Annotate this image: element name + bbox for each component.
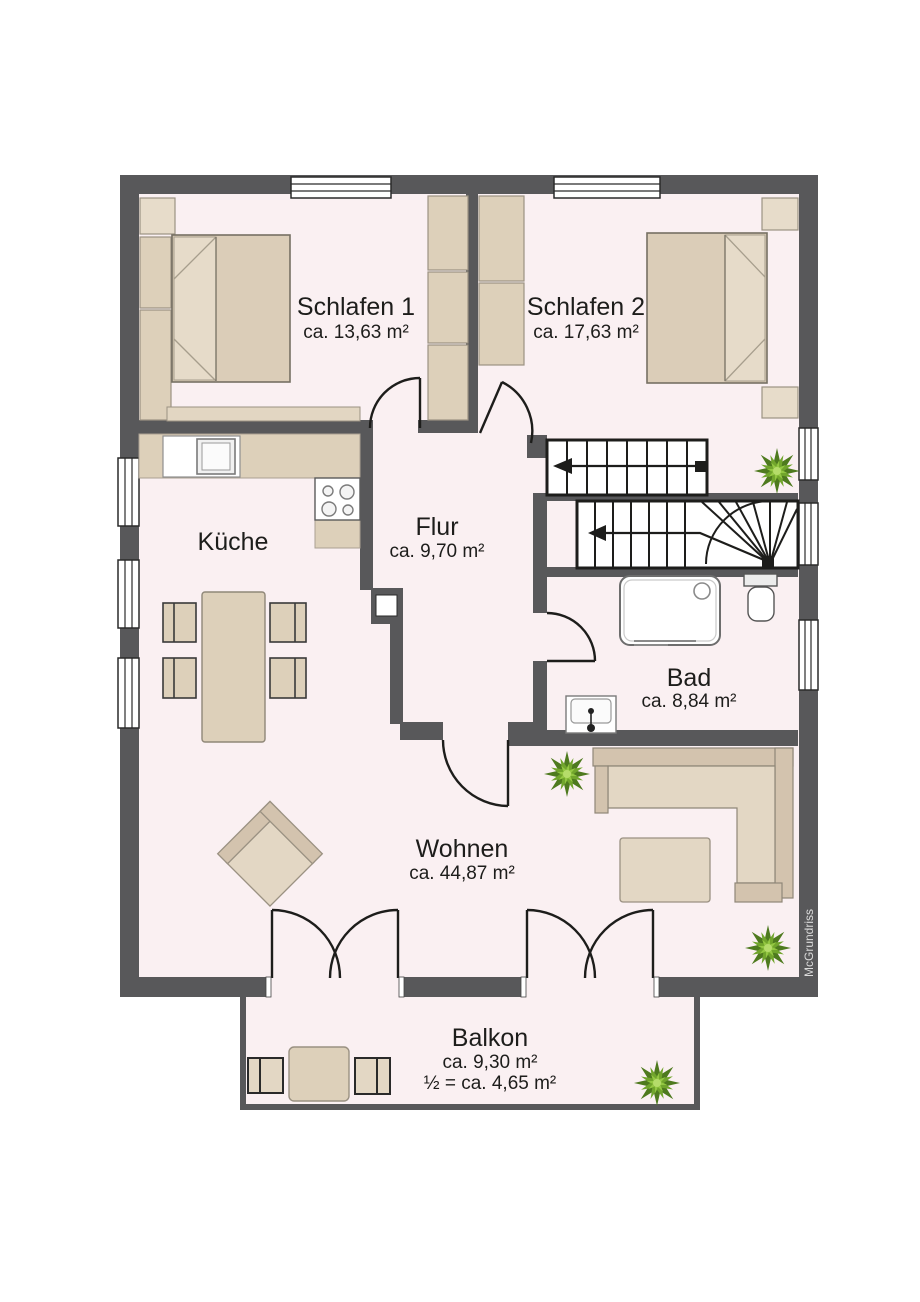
toilet: [744, 574, 777, 621]
room-label-kueche: Küche: [198, 528, 269, 556]
wardrobe: [140, 310, 171, 420]
room-label-schlafen2: Schlafen 2: [527, 293, 645, 321]
sink-basin: [202, 443, 230, 470]
nightstand: [762, 387, 798, 418]
balcony-chair: [355, 1058, 390, 1094]
floor-plan: Schlafen 1 ca. 13,63 m² Schlafen 2 ca. 1…: [0, 0, 920, 1302]
wardrobe: [479, 196, 524, 281]
room-area-balkon: ca. 9,30 m²: [442, 1052, 537, 1073]
room-area-balkon-half: ½ = ca. 4,65 m²: [424, 1073, 557, 1094]
stove: [315, 478, 360, 520]
room-area-wohnen: ca. 44,87 m²: [409, 863, 515, 884]
bathroom-sink: [566, 696, 616, 733]
wardrobe: [428, 345, 468, 420]
room-area-flur: ca. 9,70 m²: [389, 541, 484, 562]
room-area-bad: ca. 8,84 m²: [641, 691, 736, 712]
room-label-wohnen: Wohnen: [416, 835, 509, 863]
nightstand: [762, 198, 798, 230]
plant-landing: [754, 448, 800, 494]
room-label-flur: Flur: [415, 513, 458, 541]
room-area-schlafen1: ca. 13,63 m²: [303, 322, 409, 343]
balcony-table: [289, 1047, 349, 1101]
coffee-table: [620, 838, 710, 902]
room-label-balkon: Balkon: [452, 1024, 528, 1052]
dining-table: [202, 592, 265, 742]
wall-shaft: [376, 595, 397, 616]
wardrobe: [140, 237, 171, 308]
staircase-lower: [577, 501, 798, 568]
room-label-bad: Bad: [667, 664, 711, 692]
wardrobe: [428, 196, 468, 270]
sideboard: [167, 407, 360, 421]
nightstand: [140, 198, 175, 234]
shower: [620, 576, 720, 645]
floor-plan-page: Schlafen 1 ca. 13,63 m² Schlafen 2 ca. 1…: [0, 0, 920, 1302]
wardrobe: [428, 272, 468, 343]
plant-livingroom-top: [544, 751, 590, 797]
plant-balcony: [634, 1060, 680, 1106]
bed: [647, 233, 767, 383]
watermark: McGrundriss: [802, 909, 816, 977]
wardrobe: [479, 283, 524, 365]
balcony-chair: [248, 1058, 283, 1093]
staircase-upper: [547, 440, 707, 495]
bed: [172, 235, 290, 382]
room-area-schlafen2: ca. 17,63 m²: [533, 322, 639, 343]
plant-livingroom-bottom: [745, 925, 791, 971]
room-label-schlafen1: Schlafen 1: [297, 293, 415, 321]
